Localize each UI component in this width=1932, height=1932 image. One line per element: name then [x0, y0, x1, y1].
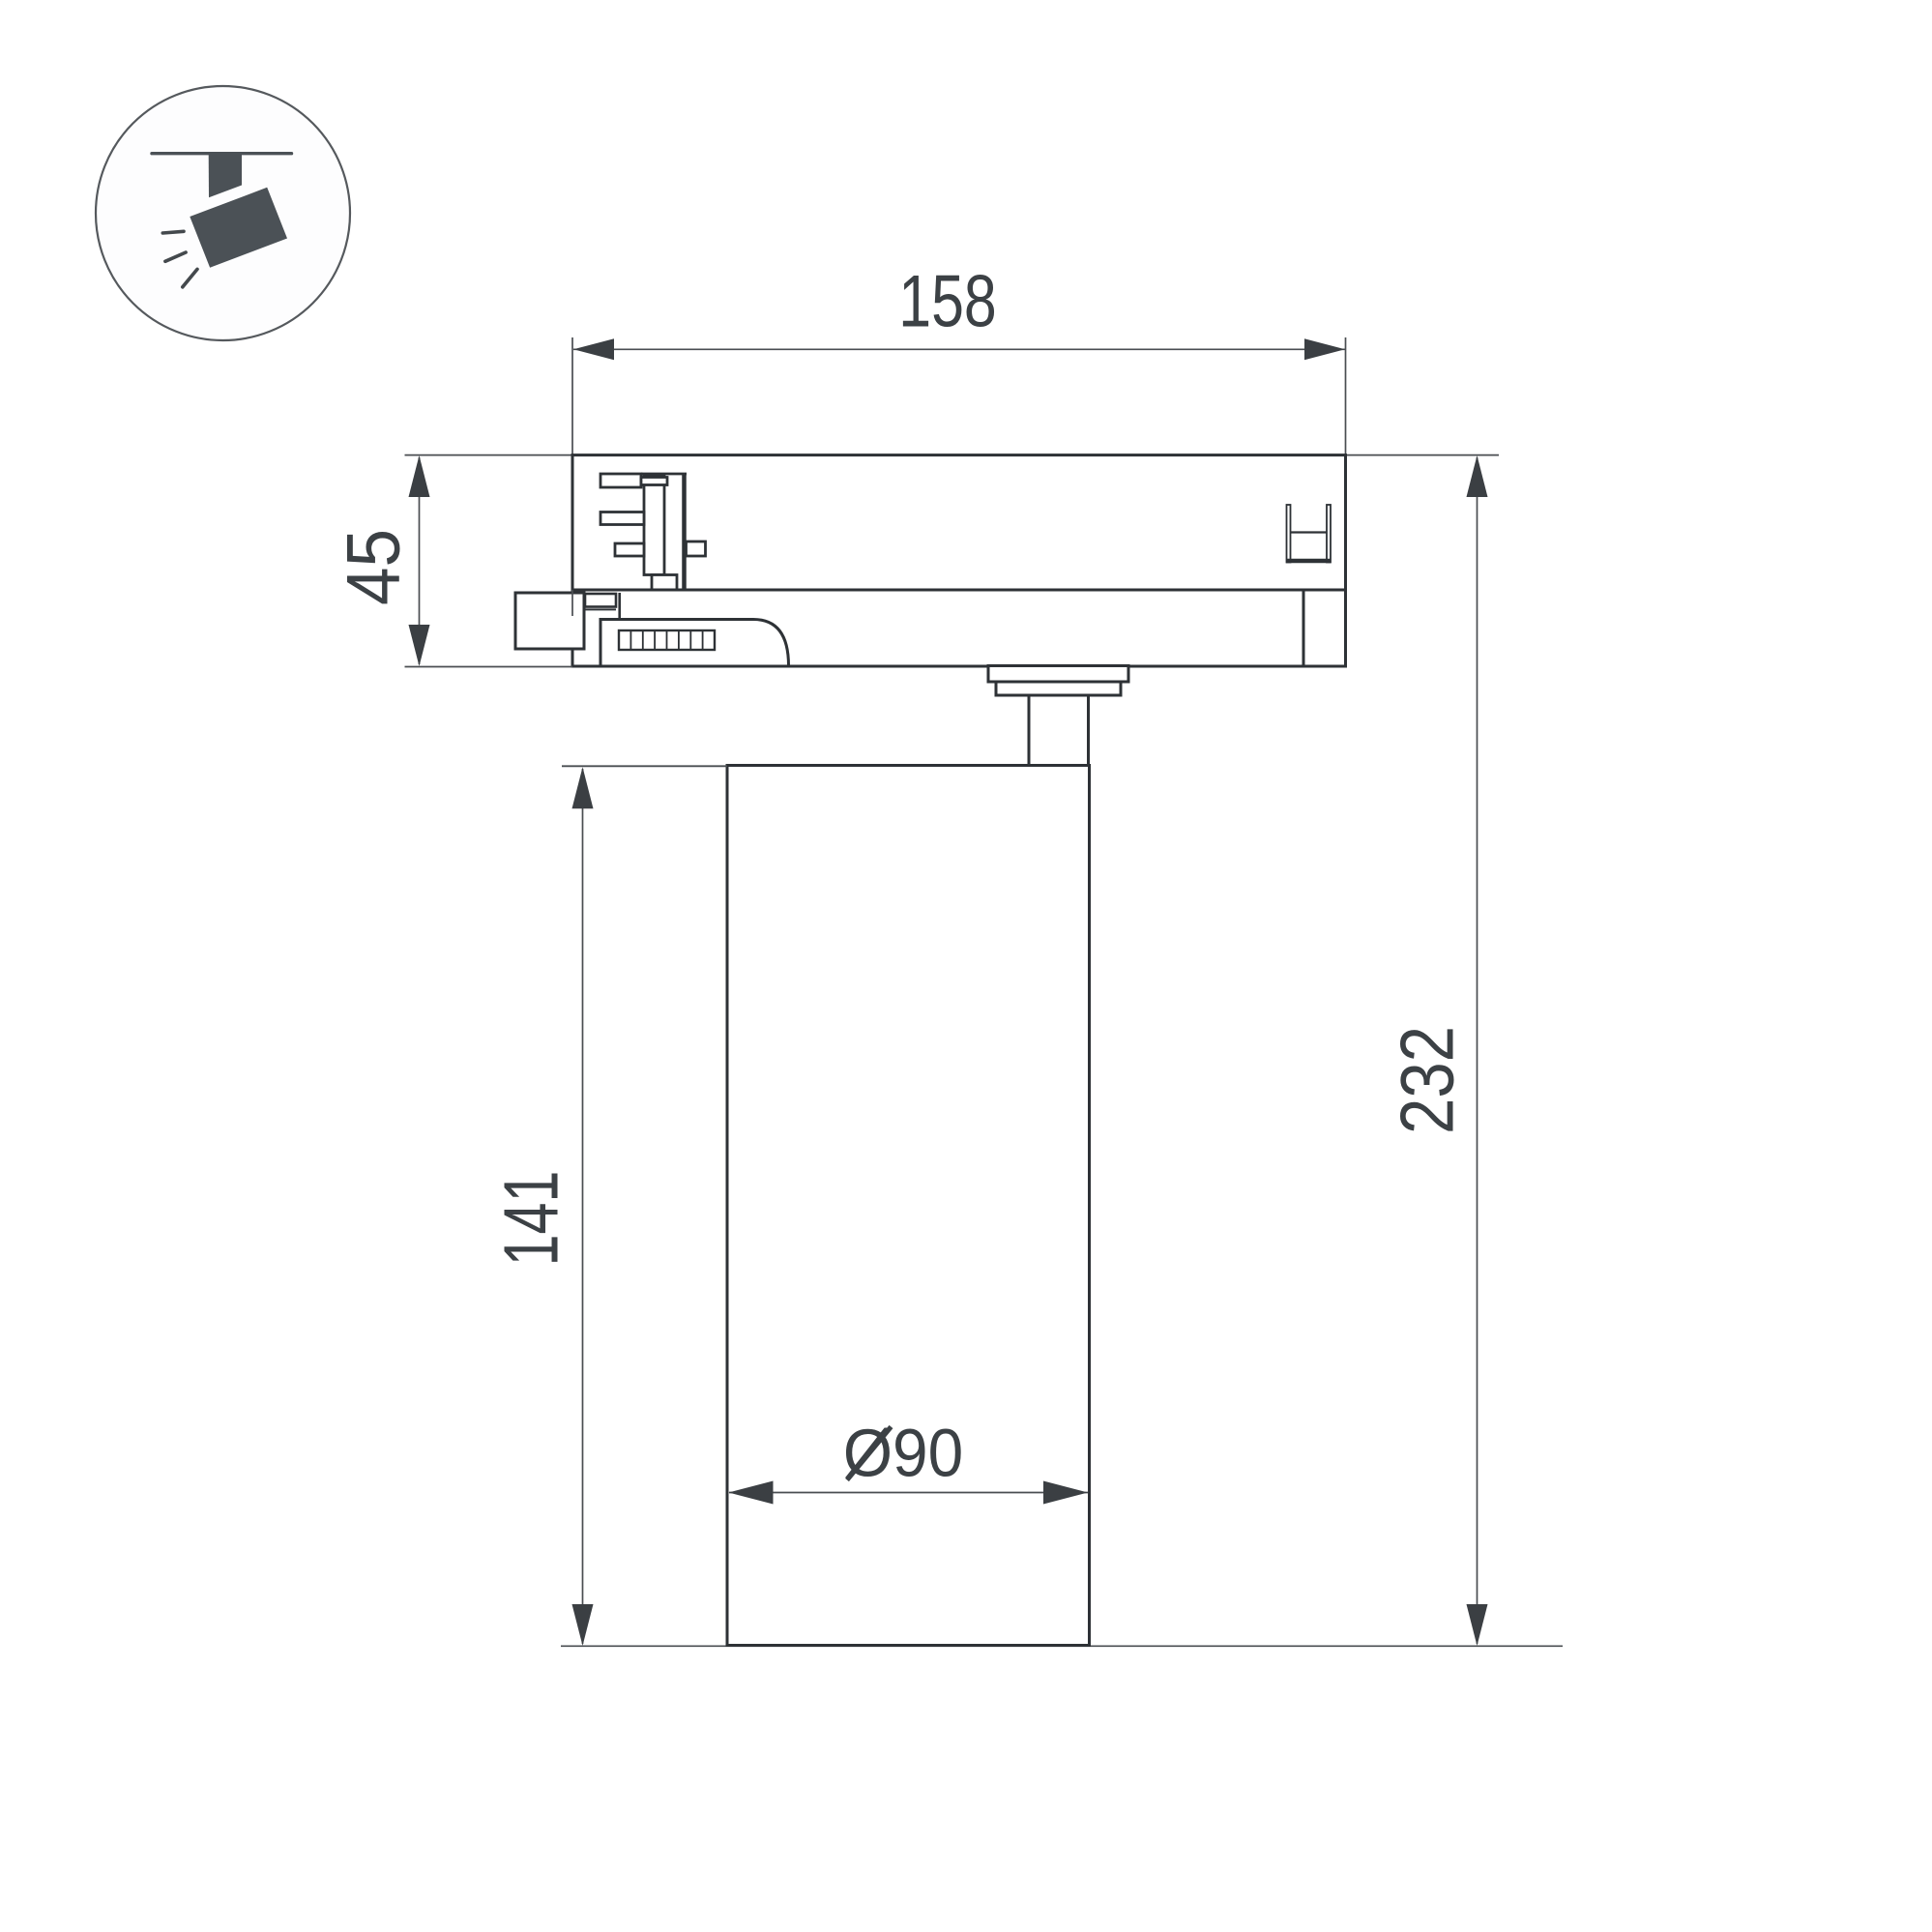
svg-text:141: 141 — [487, 1171, 574, 1267]
svg-text:Ø90: Ø90 — [843, 1417, 963, 1491]
svg-text:158: 158 — [898, 260, 996, 342]
svg-text:45: 45 — [330, 529, 415, 605]
svg-text:232: 232 — [1386, 1026, 1470, 1134]
